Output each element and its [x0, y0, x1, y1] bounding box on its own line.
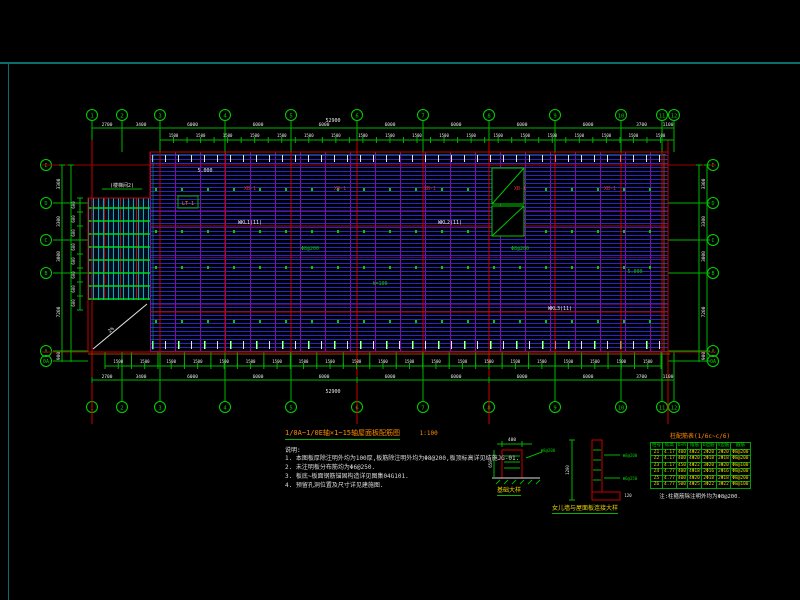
svg-text:3700: 3700	[636, 122, 647, 128]
table-cell: 4Φ18	[687, 469, 701, 476]
table-cell: Φ8@100	[731, 482, 750, 489]
svg-text:6: 6	[355, 114, 358, 120]
table-cell: 2Φ16	[701, 469, 716, 476]
svg-text:3300: 3300	[701, 216, 707, 227]
svg-text:WKL3(11): WKL3(11)	[548, 306, 572, 312]
drawing-overlay: 112233445566778899101011111212EEDDCCBBAA…	[0, 0, 800, 600]
svg-text:8: 8	[487, 114, 490, 120]
column-schedule-table: 柱号标高b×h角筋b边筋h边筋箍筋Z14.174004Φ222Φ202Φ20Φ8…	[650, 442, 751, 489]
svg-text:900: 900	[56, 352, 62, 360]
svg-text:900: 900	[701, 352, 707, 360]
svg-text:3400: 3400	[136, 374, 147, 380]
table-cell: 4.17	[663, 449, 677, 456]
svg-text:7200: 7200	[701, 306, 707, 317]
svg-text:1500: 1500	[405, 359, 415, 364]
table-cell: 2Φ20	[716, 449, 731, 456]
svg-text:2700: 2700	[102, 374, 113, 380]
svg-text:600: 600	[71, 215, 76, 223]
svg-text:6000: 6000	[319, 374, 330, 380]
svg-text:1500: 1500	[223, 133, 233, 138]
table-cell: 2Φ18	[701, 475, 716, 482]
svg-text:1500: 1500	[219, 359, 229, 364]
svg-text:1500: 1500	[358, 133, 368, 138]
table-cell: b边筋	[701, 443, 716, 450]
dimension-lines: 2700340060006000600060006000600060003700…	[56, 118, 710, 395]
table-cell: 2Φ18	[716, 456, 731, 463]
svg-text:1500: 1500	[629, 133, 639, 138]
svg-text:Φ8@200: Φ8@200	[623, 453, 638, 458]
svg-text:1500: 1500	[196, 133, 206, 138]
notes-heading: 说明:	[285, 445, 505, 454]
svg-text:1500: 1500	[412, 133, 422, 138]
svg-text:2: 2	[120, 114, 123, 120]
svg-text:7: 7	[421, 406, 424, 412]
svg-text:1500: 1500	[547, 133, 557, 138]
svg-text:1500: 1500	[458, 359, 468, 364]
svg-text:E: E	[711, 163, 714, 169]
svg-text:XB-1: XB-1	[604, 186, 616, 192]
svg-text:5: 5	[289, 406, 292, 412]
svg-text:1500: 1500	[272, 359, 282, 364]
table-cell: h边筋	[716, 443, 731, 450]
table-cell: 400	[676, 475, 687, 482]
svg-text:XB-1: XB-1	[424, 186, 436, 192]
svg-text:1500: 1500	[439, 133, 449, 138]
svg-text:9: 9	[553, 406, 556, 412]
svg-text:600: 600	[71, 229, 76, 237]
svg-text:600: 600	[71, 285, 76, 293]
svg-text:1200: 1200	[565, 465, 570, 475]
svg-text:WKL1(11): WKL1(11)	[238, 220, 262, 226]
svg-text:400: 400	[508, 437, 516, 443]
svg-text:6000: 6000	[451, 374, 462, 380]
svg-text:1500: 1500	[277, 133, 287, 138]
svg-text:2%: 2%	[107, 326, 115, 334]
svg-text:10: 10	[618, 406, 625, 412]
plan-scale: 1:100	[420, 430, 438, 437]
table-cell: 2Φ18	[701, 456, 716, 463]
svg-text:C: C	[711, 238, 714, 244]
plan-annotations: (楼梯间2)LT-15.000XB-1XB-1XB-1XB-1XB-1WKL1(…	[102, 168, 643, 334]
svg-text:2: 2	[120, 406, 123, 412]
note-line: 3. 板底~板面钢筋锚固构造详见图集04G101.	[285, 472, 505, 481]
svg-text:3: 3	[158, 114, 161, 120]
table-cell: 3Φ20	[716, 462, 731, 469]
svg-text:5: 5	[289, 114, 292, 120]
table-cell: 450	[676, 462, 687, 469]
svg-text:2700: 2700	[102, 122, 113, 128]
svg-text:XB-1: XB-1	[334, 186, 346, 192]
svg-text:1500: 1500	[431, 359, 441, 364]
svg-text:3400: 3400	[136, 122, 147, 128]
detail-right-caption: 女儿墙与屋面板连接大样	[552, 503, 618, 514]
table-cell: Φ8@200	[731, 449, 750, 456]
table-cell: 4.77	[663, 482, 677, 489]
note-line: 1. 本图板厚除注明外均为100厚,板筋除注明外均为Φ8@200,板顶标高详见结…	[285, 454, 505, 463]
svg-text:1500: 1500	[193, 359, 203, 364]
notes-list: 1. 本图板厚除注明外均为100厚,板筋除注明外均为Φ8@200,板顶标高详见结…	[285, 454, 505, 490]
table-cell: 4.17	[663, 462, 677, 469]
svg-text:D: D	[44, 201, 47, 207]
column-schedule: 柱配筋表(1/6c~c/6) 柱号标高b×h角筋b边筋h边筋箍筋Z14.1740…	[650, 431, 750, 500]
svg-text:600: 600	[71, 257, 76, 265]
table-cell: Φ8@100	[731, 462, 750, 469]
svg-text:0A: 0A	[710, 359, 716, 365]
plan-linework	[88, 152, 670, 354]
note-line: 2. 未注明板分布筋均为Φ6@250.	[285, 463, 505, 472]
svg-text:1500: 1500	[352, 359, 362, 364]
svg-text:11: 11	[659, 114, 666, 120]
svg-text:1500: 1500	[511, 359, 521, 364]
svg-text:3300: 3300	[701, 178, 707, 189]
svg-text:D: D	[711, 201, 714, 207]
svg-text:1500: 1500	[643, 359, 653, 364]
svg-text:5.000: 5.000	[197, 168, 212, 174]
svg-text:1500: 1500	[378, 359, 388, 364]
svg-text:3: 3	[158, 406, 161, 412]
table-cell: 4Φ25	[687, 482, 701, 489]
svg-text:1100: 1100	[663, 122, 674, 128]
svg-text:1500: 1500	[484, 359, 494, 364]
table-cell: Φ8@200	[731, 469, 750, 476]
svg-text:52900: 52900	[325, 389, 340, 395]
svg-text:6000: 6000	[187, 374, 198, 380]
svg-text:7: 7	[421, 114, 424, 120]
svg-text:1500: 1500	[616, 359, 626, 364]
svg-text:Φ8@200: Φ8@200	[301, 246, 319, 252]
table-cell: 400	[676, 449, 687, 456]
plan-title: 1/0A~1/0E轴×1~15轴屋面板配筋图	[285, 428, 400, 440]
table-cell: 4.77	[663, 475, 677, 482]
table-cell: 2Φ18	[716, 475, 731, 482]
svg-text:B: B	[44, 271, 47, 277]
column-schedule-title: 柱配筋表(1/6c~c/6)	[650, 431, 750, 440]
table-cell: 500	[676, 482, 687, 489]
svg-text:1500: 1500	[299, 359, 309, 364]
svg-text:4: 4	[223, 406, 227, 412]
svg-text:0A: 0A	[43, 359, 49, 365]
svg-text:600: 600	[71, 271, 76, 279]
svg-text:6000: 6000	[253, 122, 264, 128]
svg-text:1500: 1500	[140, 359, 150, 364]
svg-text:1500: 1500	[325, 359, 335, 364]
svg-text:1500: 1500	[466, 133, 476, 138]
svg-text:600: 600	[71, 201, 76, 209]
svg-text:1500: 1500	[564, 359, 574, 364]
svg-text:6000: 6000	[517, 374, 528, 380]
table-cell: Φ8@200	[731, 475, 750, 482]
table-cell: 4.77	[663, 469, 677, 476]
svg-text:1500: 1500	[493, 133, 503, 138]
svg-text:6000: 6000	[583, 374, 594, 380]
svg-text:6000: 6000	[451, 122, 462, 128]
svg-text:Φ8@200: Φ8@200	[511, 246, 529, 252]
column-schedule-caption: 注:柱箍筋除注明外均为Φ8@200.	[650, 492, 750, 500]
svg-text:10: 10	[618, 114, 625, 120]
svg-text:52900: 52900	[325, 118, 340, 124]
table-cell: 4Φ22	[687, 449, 701, 456]
svg-text:600: 600	[71, 243, 76, 251]
svg-text:6000: 6000	[583, 122, 594, 128]
svg-text:XB-1: XB-1	[244, 186, 256, 192]
svg-text:1500: 1500	[602, 133, 612, 138]
table-cell: 3Φ22	[716, 482, 731, 489]
svg-text:h=100: h=100	[372, 281, 387, 287]
cad-canvas[interactable]: 112233445566778899101011111212EEDDCCBBAA…	[0, 0, 800, 600]
svg-text:3700: 3700	[636, 374, 647, 380]
svg-text:B: B	[711, 271, 714, 277]
svg-text:6000: 6000	[385, 122, 396, 128]
svg-text:1500: 1500	[113, 359, 123, 364]
svg-text:1500: 1500	[520, 133, 530, 138]
svg-text:1500: 1500	[250, 133, 260, 138]
svg-text:1500: 1500	[590, 359, 600, 364]
svg-text:Φ6@250: Φ6@250	[623, 476, 638, 481]
svg-text:1500: 1500	[246, 359, 256, 364]
svg-text:120: 120	[624, 493, 632, 498]
svg-text:600: 600	[71, 299, 76, 307]
svg-text:1: 1	[90, 114, 93, 120]
svg-text:1500: 1500	[385, 133, 395, 138]
table-cell: 400	[676, 469, 687, 476]
svg-text:(楼梯间2): (楼梯间2)	[110, 182, 134, 189]
svg-text:6000: 6000	[385, 374, 396, 380]
svg-text:6000: 6000	[187, 122, 198, 128]
table-cell: 2Φ20	[701, 449, 716, 456]
svg-text:9: 9	[553, 114, 556, 120]
table-cell: 4.17	[663, 456, 677, 463]
svg-text:C: C	[44, 238, 47, 244]
table-cell: 2Φ16	[716, 469, 731, 476]
svg-text:1500: 1500	[331, 133, 341, 138]
svg-text:12: 12	[671, 406, 678, 412]
svg-text:WKL2(11): WKL2(11)	[438, 220, 462, 226]
svg-text:6000: 6000	[517, 122, 528, 128]
svg-text:3000: 3000	[56, 251, 62, 262]
svg-text:1500: 1500	[166, 359, 176, 364]
svg-text:1100: 1100	[663, 374, 674, 380]
svg-text:Φ8@200: Φ8@200	[541, 448, 556, 453]
svg-text:1500: 1500	[574, 133, 584, 138]
svg-text:6000: 6000	[253, 374, 264, 380]
svg-text:4: 4	[223, 114, 227, 120]
table-cell: 400	[676, 456, 687, 463]
svg-text:11: 11	[659, 406, 666, 412]
svg-text:XB-1: XB-1	[514, 186, 526, 192]
table-cell: 4Φ20	[687, 456, 701, 463]
svg-text:1500: 1500	[169, 133, 179, 138]
svg-text:1500: 1500	[656, 133, 666, 138]
svg-text:1500: 1500	[304, 133, 314, 138]
svg-text:E: E	[44, 163, 47, 169]
table-cell: 4Φ22	[687, 462, 701, 469]
note-line: 4. 预留孔洞位置及尺寸详见建施图.	[285, 481, 505, 490]
table-cell: 柱号	[651, 443, 663, 450]
table-cell: b×h	[676, 443, 687, 450]
svg-text:3300: 3300	[56, 178, 62, 189]
svg-text:LT-1: LT-1	[182, 201, 194, 207]
svg-text:7200: 7200	[56, 306, 62, 317]
svg-text:3300: 3300	[56, 216, 62, 227]
svg-text:12: 12	[671, 114, 678, 120]
notes-block: 1/0A~1/0E轴×1~15轴屋面板配筋图 1:100 说明: 1. 本图板厚…	[285, 420, 505, 490]
svg-text:5.000: 5.000	[627, 269, 642, 275]
table-cell: Z6	[651, 482, 663, 489]
table-cell: 4Φ20	[687, 475, 701, 482]
svg-text:3000: 3000	[701, 251, 707, 262]
svg-text:1500: 1500	[537, 359, 547, 364]
table-cell: 3Φ20	[701, 462, 716, 469]
detail-left-caption: 基础大样	[497, 485, 521, 496]
table-cell: Φ8@200	[731, 456, 750, 463]
table-cell: 3Φ22	[701, 482, 716, 489]
